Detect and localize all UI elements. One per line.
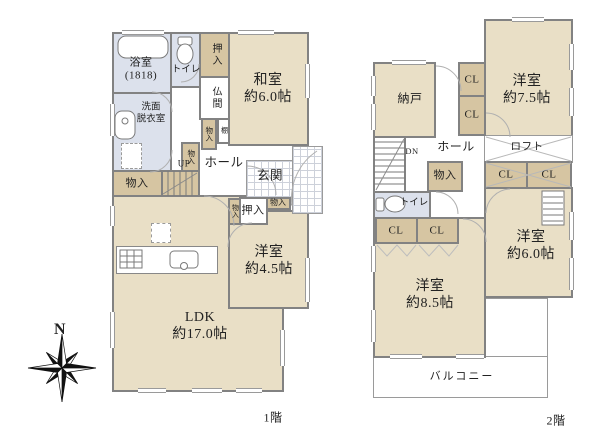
window — [392, 60, 426, 65]
genkan-label: 玄関 — [257, 168, 283, 183]
room-toilet-1f — [170, 32, 201, 88]
butsuma-label: 仏間 — [210, 86, 220, 110]
cl-b-label: CL — [464, 108, 479, 121]
yoshitsu-8-5-label: 洋室 約8.5帖 — [406, 278, 454, 312]
balcony-side — [484, 298, 548, 358]
window — [371, 76, 376, 96]
toilet-1f-label: トイレ — [172, 65, 201, 77]
stairs-2f-block — [373, 136, 406, 193]
up-label: UP — [178, 159, 191, 170]
window — [305, 64, 310, 98]
toilet-2f-label: トイレ — [400, 198, 429, 210]
window — [110, 104, 115, 136]
window — [569, 212, 574, 240]
loft-label: ロフト — [511, 142, 544, 155]
nando-label: 納戸 — [397, 92, 422, 107]
compass-rose-icon — [28, 334, 96, 402]
dn-label: DN — [405, 146, 418, 156]
window — [192, 388, 222, 393]
window — [569, 44, 574, 70]
window — [280, 330, 285, 366]
bathroom-label: 浴室 (1818) — [125, 57, 157, 84]
storage-left-label: 物入 — [126, 177, 149, 190]
window — [138, 388, 166, 393]
window — [236, 388, 262, 393]
oshiire-2-label: 押入 — [242, 204, 265, 217]
floor-plan-canvas: 浴室 (1818) トイレ 押入 和室 約6.0帖 仏間 洗面 脱衣室 物入 棚… — [0, 0, 600, 446]
yoshitsu-4-5-label: 洋室 約4.5帖 — [245, 244, 293, 278]
washroom-label: 洗面 脱衣室 — [137, 102, 166, 125]
window — [122, 30, 164, 35]
storage-tiny-label: 物入 — [232, 204, 239, 218]
window — [390, 354, 422, 359]
window — [371, 310, 376, 342]
window — [371, 246, 376, 272]
window — [456, 354, 484, 359]
window — [569, 88, 574, 116]
yoshitsu-6-0-label: 洋室 約6.0帖 — [507, 229, 555, 263]
window — [110, 312, 115, 348]
storage-2f-label: 物入 — [434, 169, 457, 182]
hall-2f-label: ホール — [437, 140, 475, 155]
storage-mid-label: 物入 — [205, 127, 213, 142]
ldk-table-outline — [151, 223, 171, 243]
window — [305, 258, 310, 302]
cl-a-label: CL — [464, 73, 479, 86]
cl-e-label: CL — [388, 224, 403, 237]
ldk-label: LDK 約17.0帖 — [172, 309, 228, 343]
floor-1-label: 1階 — [263, 411, 282, 426]
window — [569, 258, 574, 290]
washitsu-label: 和室 約6.0帖 — [244, 72, 292, 106]
window — [238, 30, 274, 35]
cl-d-label: CL — [541, 168, 556, 181]
shelf-label: 棚 — [221, 127, 228, 134]
window — [512, 17, 544, 22]
compass-north-label: N — [54, 320, 66, 340]
balcony-label: バルコニー — [430, 370, 495, 383]
closet-oshiire-top-label: 押入 — [210, 43, 220, 67]
storage-right-label: 物入 — [270, 198, 286, 208]
window — [110, 206, 115, 226]
hall-1f-label: ホール — [204, 155, 243, 170]
stairs-1f-block — [161, 170, 200, 197]
floor-2-label: 2階 — [546, 414, 565, 429]
entrance-porch-tile — [292, 146, 323, 214]
cl-c-label: CL — [498, 168, 513, 181]
cl-f-label: CL — [429, 224, 444, 237]
window — [371, 104, 376, 130]
yoshitsu-7-5-label: 洋室 約7.5帖 — [503, 73, 551, 107]
washer-space-outline — [121, 143, 142, 169]
kitchen-counter — [116, 246, 218, 274]
